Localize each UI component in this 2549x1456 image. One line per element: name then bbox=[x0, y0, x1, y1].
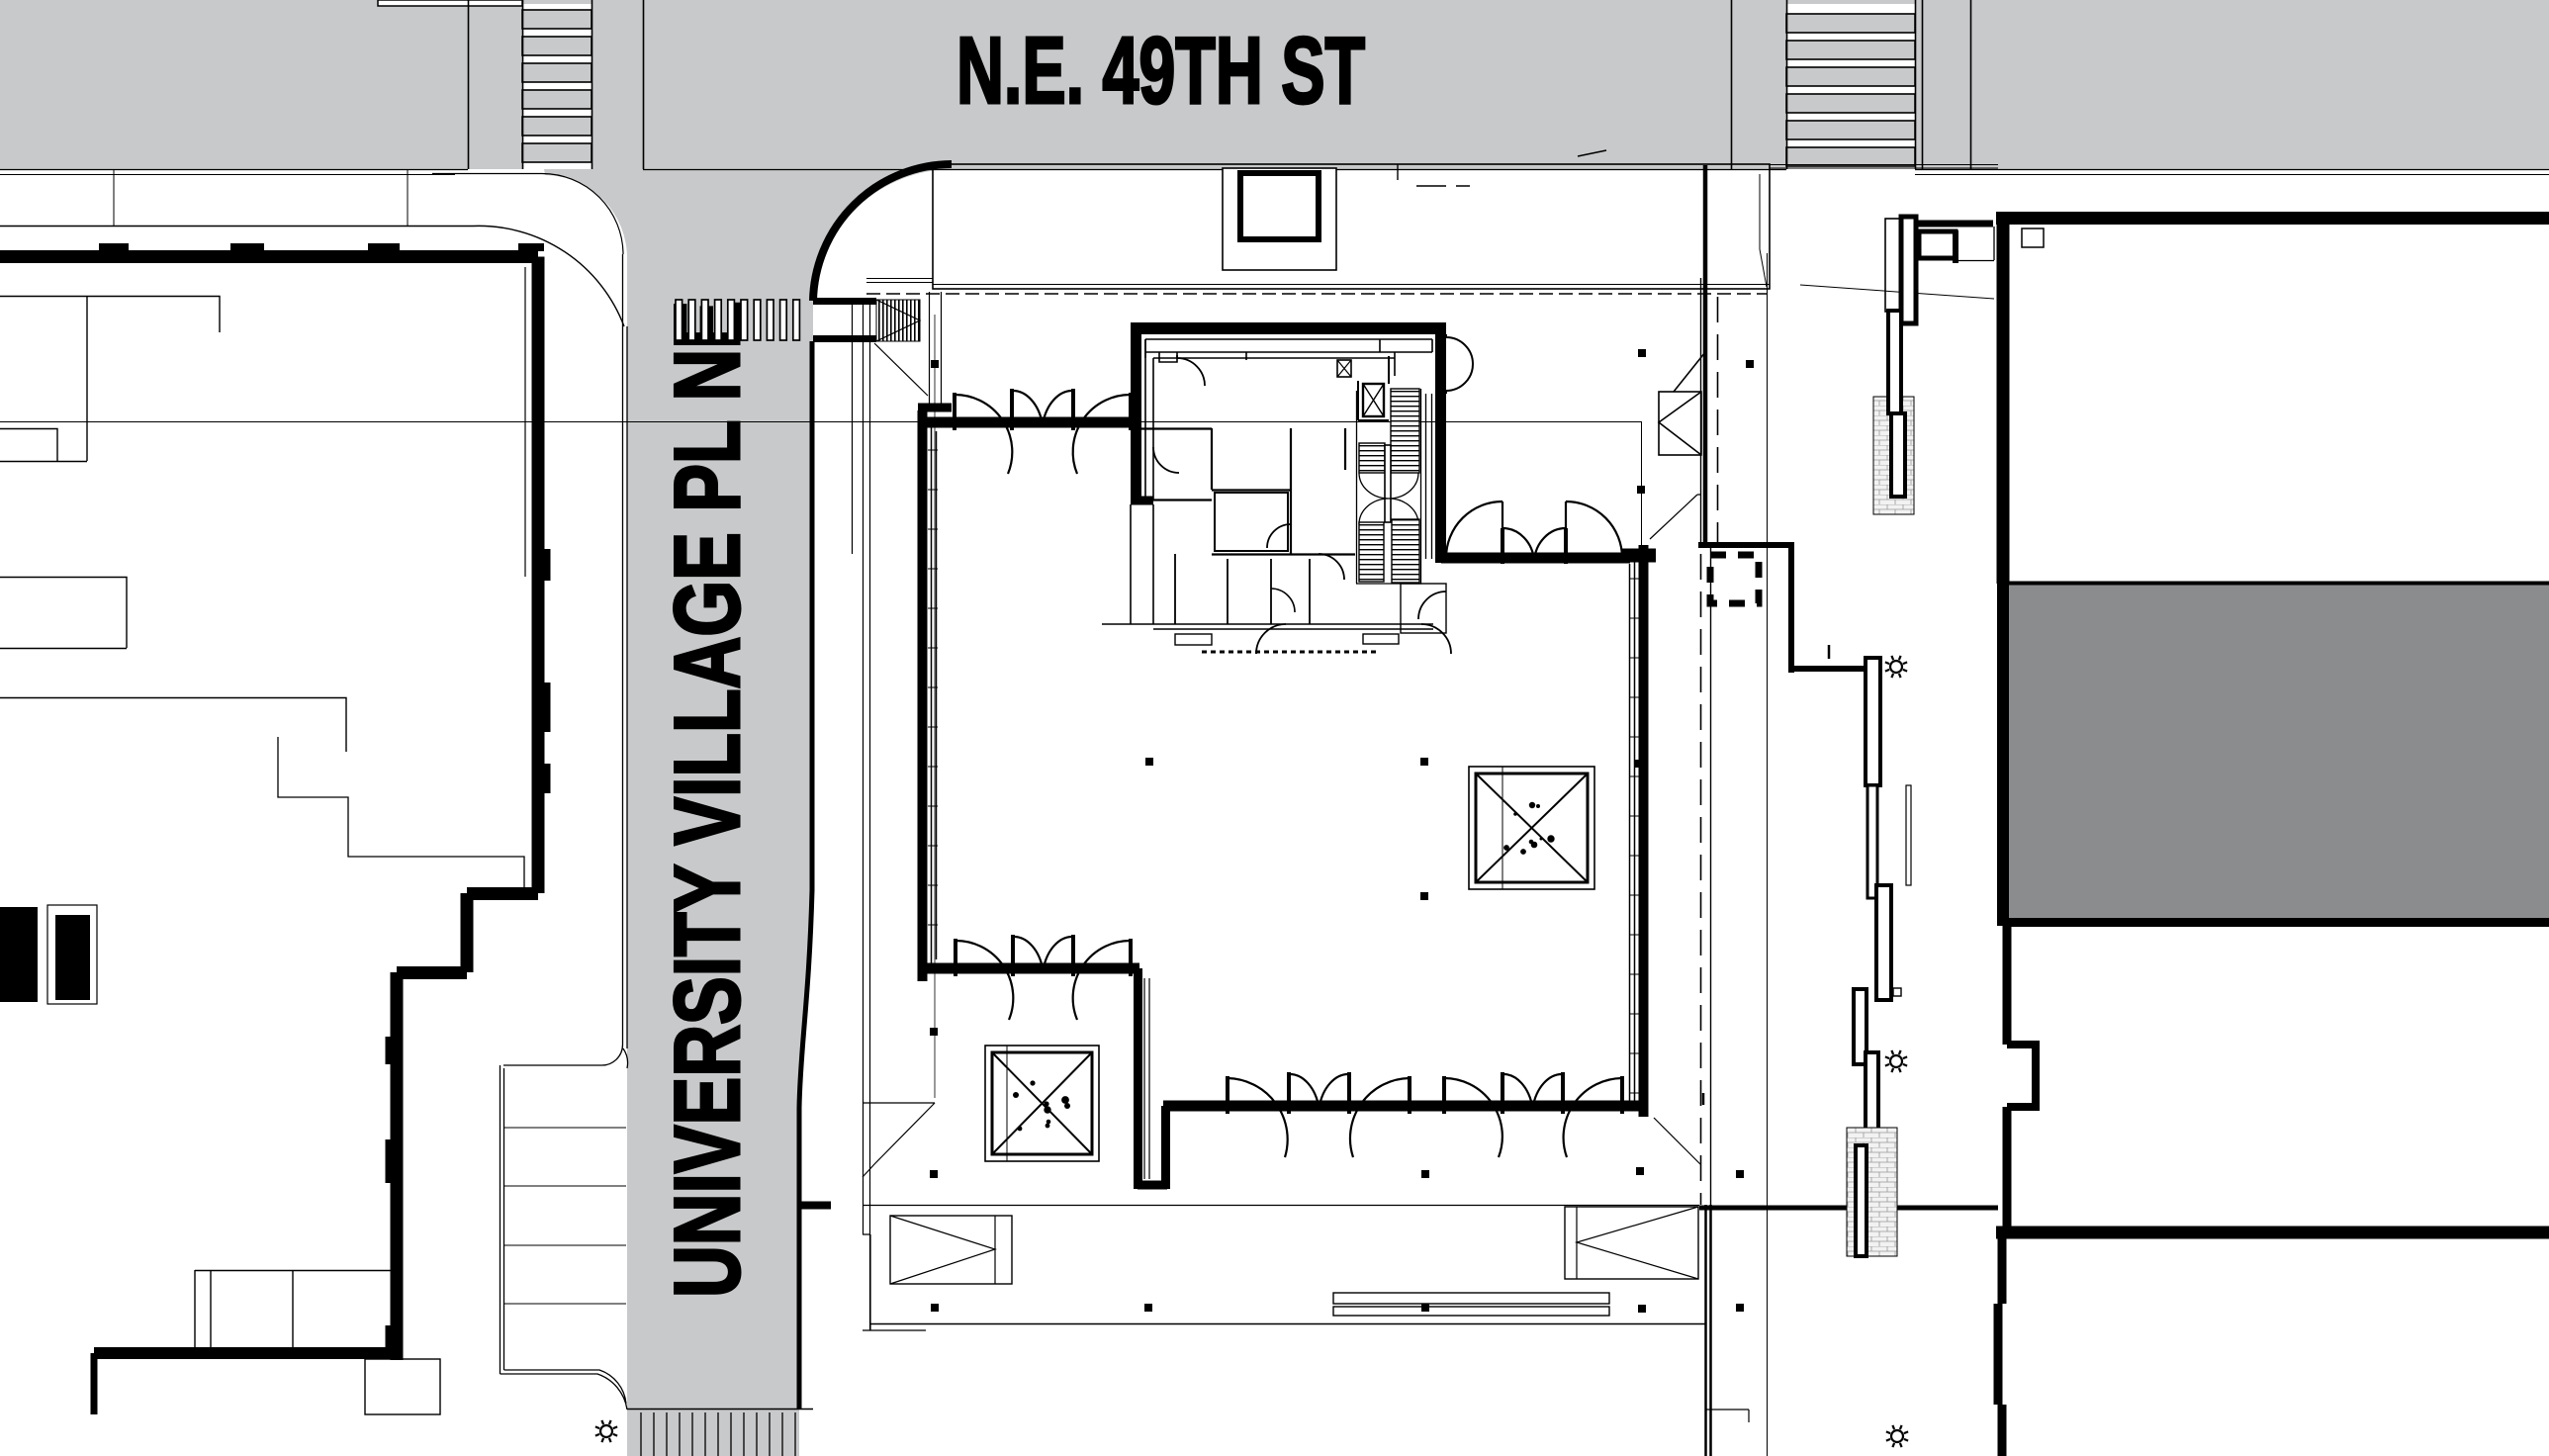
svg-text:N.E. 49TH ST: N.E. 49TH ST bbox=[956, 18, 1365, 124]
svg-text:UNIVERSITY VILLAGE PL NE: UNIVERSITY VILLAGE PL NE bbox=[655, 301, 759, 1298]
